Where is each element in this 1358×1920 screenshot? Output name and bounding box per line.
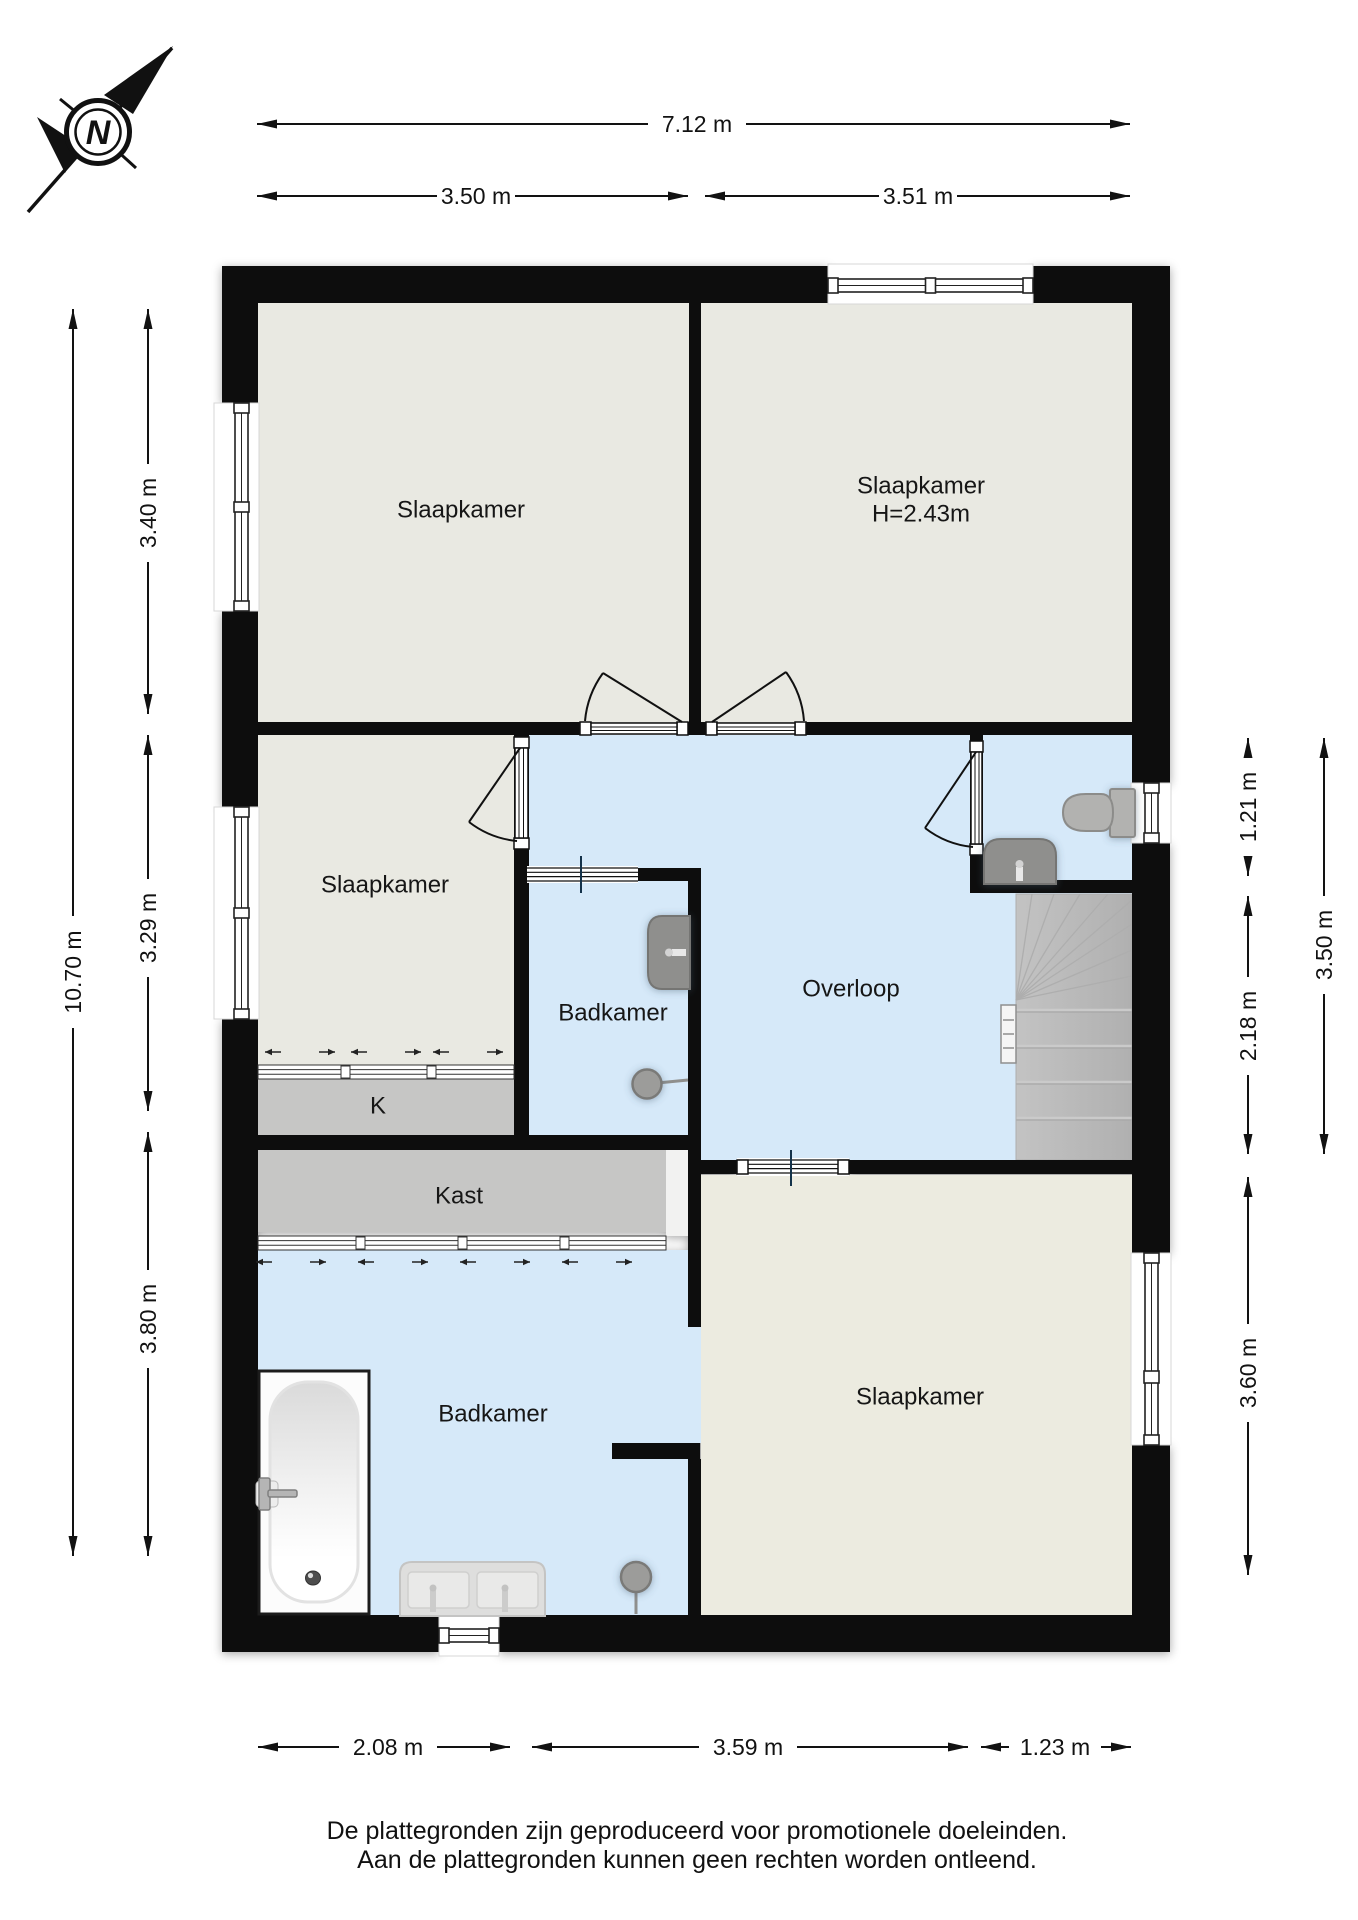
svg-text:Badkamer: Badkamer: [438, 1401, 547, 1428]
svg-text:3.60 m: 3.60 m: [1235, 1338, 1261, 1408]
svg-text:3.50 m: 3.50 m: [1311, 910, 1337, 980]
svg-text:Slaapkamer: Slaapkamer: [397, 497, 525, 524]
svg-text:1.21 m: 1.21 m: [1235, 772, 1261, 842]
svg-text:2.08 m: 2.08 m: [353, 1734, 423, 1760]
svg-text:K: K: [370, 1093, 386, 1120]
svg-text:Badkamer: Badkamer: [558, 1000, 667, 1027]
svg-text:3.29 m: 3.29 m: [135, 893, 161, 963]
svg-text:H=2.43m: H=2.43m: [872, 501, 970, 528]
svg-text:2.18 m: 2.18 m: [1235, 991, 1261, 1061]
svg-text:Slaapkamer: Slaapkamer: [857, 473, 985, 500]
svg-text:3.80 m: 3.80 m: [135, 1284, 161, 1354]
svg-text:Slaapkamer: Slaapkamer: [856, 1384, 984, 1411]
svg-text:N: N: [86, 114, 112, 152]
svg-text:3.51 m: 3.51 m: [883, 183, 953, 209]
svg-text:7.12 m: 7.12 m: [662, 111, 732, 137]
svg-text:Slaapkamer: Slaapkamer: [321, 872, 449, 899]
svg-text:3.40 m: 3.40 m: [135, 478, 161, 548]
svg-text:Kast: Kast: [435, 1183, 483, 1210]
svg-text:Aan de plattegronden kunnen ge: Aan de plattegronden kunnen geen rechten…: [357, 1846, 1037, 1874]
svg-text:3.50 m: 3.50 m: [441, 183, 511, 209]
svg-text:10.70 m: 10.70 m: [60, 930, 86, 1013]
svg-text:De plattegronden zijn geproduc: De plattegronden zijn geproduceerd voor …: [327, 1817, 1068, 1845]
svg-text:3.59 m: 3.59 m: [713, 1734, 783, 1760]
svg-text:1.23 m: 1.23 m: [1020, 1734, 1090, 1760]
svg-text:Overloop: Overloop: [802, 976, 899, 1003]
